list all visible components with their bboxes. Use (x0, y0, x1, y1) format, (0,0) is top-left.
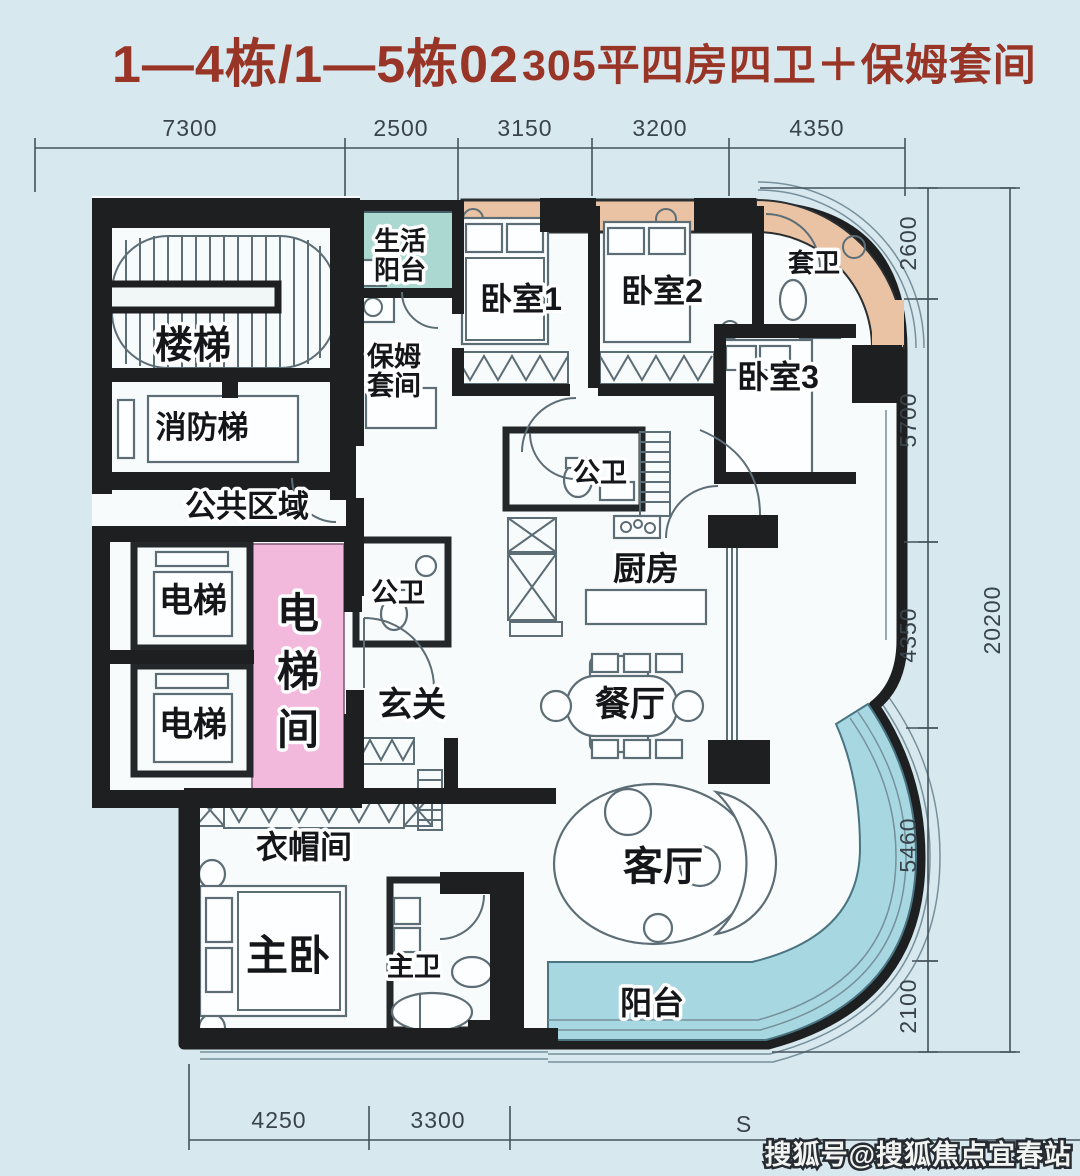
dim-right-3: 4350 (895, 607, 921, 662)
dim-top-3: 3150 (497, 115, 552, 141)
room-label-elevator-a: 电梯 (159, 582, 227, 620)
dim-bottom-1: 4250 (251, 1107, 306, 1133)
title-spec: 305平四房四卫＋保姆套间 (522, 42, 1037, 90)
room-label-master-bath: 主卫 (387, 952, 441, 982)
dim-top-4: 3200 (632, 115, 687, 141)
room-label-suite-bath: 套卫 (788, 248, 840, 278)
room-label-life-balcony: 生活阳台 (374, 226, 426, 285)
dim-top-2: 2500 (373, 115, 428, 141)
dim-right-total: 20200 (979, 586, 1005, 655)
room-label-elevator-hall: 电梯间 (277, 590, 319, 753)
bay-window-band-side (872, 300, 904, 345)
room-label-bath-west: 公卫 (371, 578, 425, 608)
room-label-fire-stairs: 消防梯 (156, 410, 249, 445)
room-label-foyer: 玄关 (378, 686, 446, 724)
stairs-landing (106, 284, 278, 310)
floor-plan-svg: 7300 2500 3150 3200 4350 2600 5700 4350 … (0, 0, 1080, 1176)
room-label-cloakroom: 衣帽间 (256, 829, 352, 865)
dim-right-4: 5460 (895, 817, 921, 872)
dim-bottom-2: 3300 (410, 1107, 465, 1133)
room-label-nanny-suite: 保姆套间 (366, 342, 421, 401)
dim-bottom-partial: S (736, 1111, 752, 1137)
room-label-kitchen: 厨房 (613, 550, 679, 587)
room-label-balcony: 阳台 (620, 985, 684, 1021)
watermark: 搜狐号@搜狐焦点宜春站 (765, 1139, 1072, 1170)
room-label-bedroom3: 卧室3 (737, 359, 819, 395)
room-label-stairs: 楼梯 (155, 325, 231, 367)
dim-right-2: 5700 (895, 392, 921, 447)
room-label-bath-east: 公卫 (573, 458, 627, 488)
room-label-dining: 餐厅 (595, 685, 665, 724)
room-label-master-bedroom: 主卧 (246, 932, 330, 979)
room-label-elevator-b: 电梯 (159, 706, 227, 744)
dim-top-1: 7300 (162, 115, 217, 141)
dim-right-1: 2600 (895, 215, 921, 270)
floor-plan-page: 7300 2500 3150 3200 4350 2600 5700 4350 … (0, 0, 1080, 1176)
title-block-no: 1—4栋/1—5栋02 (112, 36, 519, 94)
room-label-bedroom2: 卧室2 (621, 273, 703, 309)
page-title: 1—4栋/1—5栋02 305平四房四卫＋保姆套间 (112, 36, 1037, 94)
dim-right-5: 2100 (895, 978, 921, 1033)
room-label-public-area: 公共区域 (185, 489, 309, 524)
dim-top-5: 4350 (789, 115, 844, 141)
room-label-bedroom1: 卧室1 (480, 281, 562, 317)
room-label-living: 客厅 (623, 845, 703, 889)
